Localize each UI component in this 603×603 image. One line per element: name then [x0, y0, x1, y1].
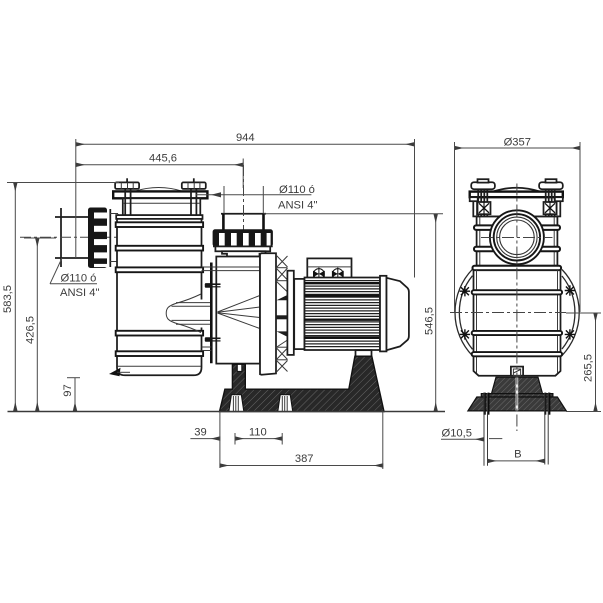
svg-text:546,5: 546,5	[424, 307, 436, 335]
svg-text:Ø110 ó: Ø110 ó	[61, 273, 97, 285]
svg-text:B: B	[514, 448, 521, 460]
svg-text:110: 110	[249, 426, 267, 438]
svg-text:ANSI 4": ANSI 4"	[60, 287, 99, 299]
svg-text:ANSI 4": ANSI 4"	[278, 200, 317, 212]
svg-text:944: 944	[236, 132, 255, 144]
svg-text:583,5: 583,5	[2, 285, 14, 313]
svg-text:426,5: 426,5	[25, 316, 37, 344]
svg-text:387: 387	[295, 453, 314, 465]
svg-text:Ø10,5: Ø10,5	[442, 427, 472, 439]
svg-text:97: 97	[62, 384, 74, 396]
svg-text:Ø110 ó: Ø110 ó	[279, 184, 315, 196]
svg-text:39: 39	[194, 426, 206, 438]
svg-text:445,6: 445,6	[149, 153, 177, 165]
svg-text:265,5: 265,5	[583, 354, 595, 382]
svg-text:Ø357: Ø357	[504, 137, 531, 149]
